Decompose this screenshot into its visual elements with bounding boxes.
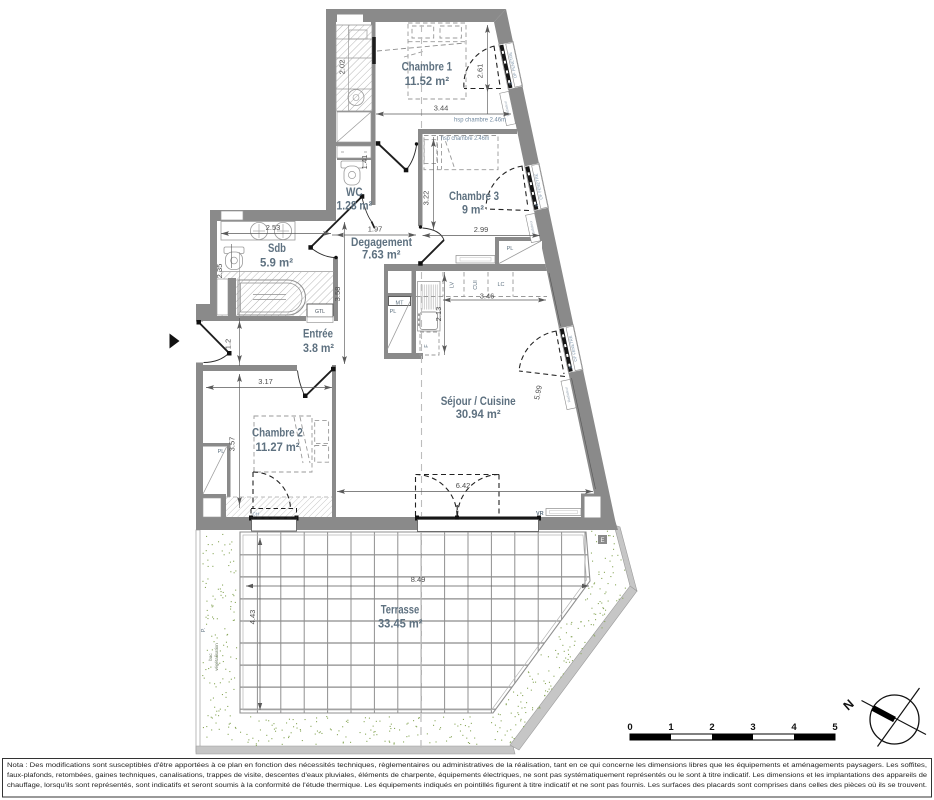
svg-text:bac: bac: [208, 653, 213, 661]
svg-text:2.13: 2.13: [434, 307, 443, 322]
svg-text:végétalisation: végétalisation: [214, 643, 219, 671]
svg-text:3.8 m²: 3.8 m²: [303, 341, 334, 355]
svg-text:PL: PL: [507, 246, 514, 252]
svg-text:5: 5: [832, 722, 838, 733]
svg-text:PL: PL: [218, 449, 225, 455]
svg-text:faux-plafonds, retombées, gain: faux-plafonds, retombées, gaines techniq…: [7, 772, 927, 779]
svg-text:3.57: 3.57: [228, 437, 237, 452]
svg-text:33.45 m²: 33.45 m²: [378, 617, 423, 631]
svg-text:2.35: 2.35: [215, 264, 224, 279]
svg-text:LV: LV: [450, 282, 456, 289]
svg-text:P.: P.: [201, 627, 207, 632]
svg-text:8.49: 8.49: [411, 575, 426, 584]
svg-text:Chambre 1: Chambre 1: [402, 60, 453, 74]
svg-text:1.2: 1.2: [224, 339, 233, 349]
svg-text:Chambre 2: Chambre 2: [252, 426, 303, 440]
svg-text:Nota : Des modifications sont: Nota : Des modifications sont susceptibl…: [7, 762, 927, 769]
svg-text:1: 1: [668, 722, 674, 733]
svg-text:CUI: CUI: [473, 280, 479, 290]
svg-text:2.61: 2.61: [476, 64, 485, 79]
svg-text:Chambre 3: Chambre 3: [449, 189, 499, 203]
svg-text:5.9 m²: 5.9 m²: [260, 256, 293, 270]
svg-text:hsp chambre 2.46m: hsp chambre 2.46m: [441, 135, 489, 142]
svg-text:2.53: 2.53: [266, 223, 281, 232]
svg-text:4: 4: [791, 722, 797, 733]
svg-text:Sdb: Sdb: [268, 241, 286, 255]
svg-text:11.52 m²: 11.52 m²: [405, 74, 450, 88]
svg-text:4.43: 4.43: [248, 610, 257, 625]
svg-text:Entrée: Entrée: [303, 327, 333, 341]
svg-text:E: E: [600, 538, 604, 544]
svg-text:GTL: GTL: [315, 309, 325, 315]
svg-text:3.46: 3.46: [480, 292, 495, 301]
svg-text:VR: VR: [536, 511, 544, 517]
svg-text:hsp chambre 2.46m: hsp chambre 2.46m: [454, 117, 506, 124]
svg-text:2: 2: [709, 722, 714, 733]
svg-text:chauffage, lorsqu'ils sont rep: chauffage, lorsqu'ils sont représentés, …: [7, 782, 927, 789]
svg-text:1.41: 1.41: [360, 155, 369, 170]
svg-text:30.94 m²: 30.94 m²: [456, 407, 501, 421]
svg-text:11.27 m²: 11.27 m²: [256, 440, 300, 454]
svg-text:0: 0: [627, 722, 632, 733]
svg-text:7.63 m²: 7.63 m²: [362, 248, 401, 262]
svg-text:1.28 m²: 1.28 m²: [337, 199, 373, 213]
svg-text:6.42: 6.42: [456, 481, 471, 490]
svg-text:3.44: 3.44: [434, 104, 449, 113]
svg-text:3: 3: [750, 722, 755, 733]
svg-text:CH: CH: [253, 512, 260, 517]
svg-text:LC: LC: [497, 282, 504, 288]
svg-text:3.17: 3.17: [258, 377, 273, 386]
svg-text:MT: MT: [396, 301, 405, 307]
svg-text:1.97: 1.97: [368, 225, 383, 234]
svg-text:Terrasse: Terrasse: [381, 603, 420, 617]
svg-text:PL: PL: [390, 309, 397, 315]
svg-text:9 m²: 9 m²: [462, 203, 484, 217]
svg-text:2.02: 2.02: [338, 60, 347, 75]
svg-text:3.22: 3.22: [422, 191, 431, 206]
svg-text:3.58: 3.58: [333, 287, 342, 302]
svg-text:WC: WC: [346, 185, 363, 199]
svg-text:Séjour / Cuisine: Séjour / Cuisine: [441, 394, 516, 408]
svg-text:2.99: 2.99: [474, 225, 489, 234]
